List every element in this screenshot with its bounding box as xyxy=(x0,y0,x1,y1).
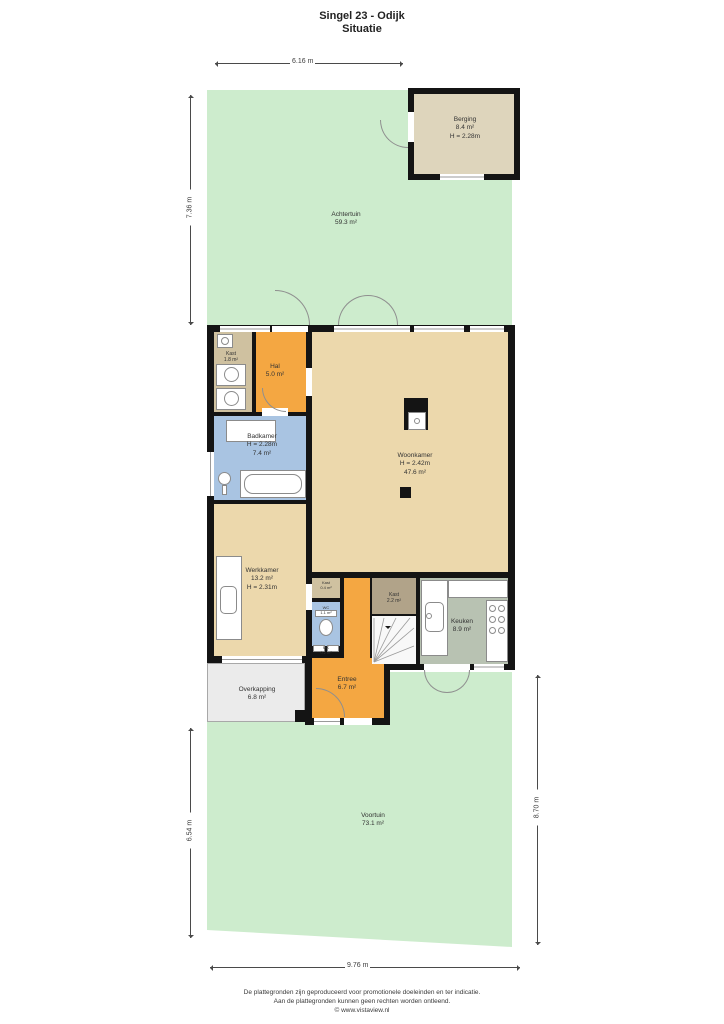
keuken-name: Keuken xyxy=(432,618,492,626)
disclaimer-line2: Aan de plattegronden kunnen geen rechten… xyxy=(0,997,724,1006)
kast-trap-label: Kast 2.2 m² xyxy=(374,592,414,605)
entree-area: 6.7 m² xyxy=(317,684,377,692)
werkkamer-label: Werkkamer 13.2 m² H = 2.31m xyxy=(202,567,322,592)
dimension-arrow-icon xyxy=(210,965,213,971)
fireplace-flue-icon xyxy=(414,418,420,424)
stove-burner-icon xyxy=(498,605,505,612)
hal-woonkamer-opening xyxy=(306,368,312,396)
hal-name: Hal xyxy=(245,363,305,371)
overkapping-area: 6.8 m² xyxy=(197,694,317,702)
entree-front-door-opening xyxy=(344,718,372,725)
meterkast-area: 0.2 m² xyxy=(306,651,346,656)
dryer-drum-icon xyxy=(224,391,239,406)
berging-name: Berging xyxy=(405,116,525,124)
garden-door-opening xyxy=(272,326,308,332)
dimension-label-top: 6.16 m xyxy=(290,58,315,65)
keuken-area: 8.9 m² xyxy=(432,626,492,634)
room-entree-gang xyxy=(344,578,370,658)
keuken-label: Keuken 8.9 m² xyxy=(432,618,492,635)
dimension-label-left-upper: 7.36 m xyxy=(187,190,194,226)
werkkamer-name: Werkkamer xyxy=(202,567,322,575)
berging-area: 8.4 m² xyxy=(405,124,525,132)
berging-window xyxy=(440,174,484,180)
kast-klein-area: 0.4 m² xyxy=(306,586,346,591)
dimension-arrow-icon xyxy=(517,965,520,971)
overkapping-name: Overkapping xyxy=(197,686,317,694)
achtertuin-area: 59.3 m² xyxy=(286,219,406,227)
woonkamer-area: 47.6 m² xyxy=(355,469,475,477)
bathroom-toilet-base-icon xyxy=(222,485,227,495)
badkamer-window xyxy=(207,452,214,496)
badkamer-label: Badkamer H = 2.28m 7.4 m² xyxy=(202,433,322,458)
entree-front-window xyxy=(314,718,340,725)
dimension-arrow-icon xyxy=(535,942,541,945)
bathtub-inner-icon xyxy=(244,474,302,494)
dimension-arrow-icon xyxy=(188,322,194,325)
werkkamer-area: 13.2 m² xyxy=(202,575,322,583)
dimension-label-right: 8.70 m xyxy=(534,790,541,826)
wc-area: 1.1 m² xyxy=(306,611,346,616)
washing-machine-drum-icon xyxy=(224,367,239,382)
hal-area: 5.0 m² xyxy=(245,371,305,379)
overkapping-label: Overkapping 6.8 m² xyxy=(197,686,317,703)
dimension-label-left-lower: 6.54 m xyxy=(187,813,194,849)
wc-toilet-icon xyxy=(319,619,333,636)
kast-bij-hal-label: Kast 1.8 m² xyxy=(210,351,252,364)
floorplan-page: Singel 23 - Odijk Situatie xyxy=(0,0,724,1024)
entree-name: Entree xyxy=(317,676,377,684)
woonkamer-height: H = 2.42m xyxy=(355,460,475,468)
woonkamer-window-1 xyxy=(414,326,464,332)
berging-label: Berging 8.4 m² H = 2.28m xyxy=(405,116,525,141)
column-icon xyxy=(400,487,411,498)
page-title: Singel 23 - Odijk Situatie xyxy=(0,10,724,36)
badkamer-area: 7.4 m² xyxy=(202,450,322,458)
kast-trap-area: 2.2 m² xyxy=(374,598,414,604)
achtertuin-window xyxy=(220,326,270,332)
voortuin-area: 73.1 m² xyxy=(313,820,433,828)
achtertuin-name: Achtertuin xyxy=(286,211,406,219)
title-line2: Situatie xyxy=(0,23,724,36)
stairs-fan-lines xyxy=(372,616,416,664)
keuken-front-window xyxy=(474,664,504,670)
dimension-arrow-icon xyxy=(188,935,194,938)
kast-klein-label: Kast 0.4 m² xyxy=(306,581,346,591)
overkapping-post xyxy=(295,710,305,722)
dimension-arrow-icon xyxy=(188,95,194,98)
woonkamer-name: Woonkamer xyxy=(355,452,475,460)
badkamer-name: Badkamer xyxy=(202,433,322,441)
berging-height: H = 2.28m xyxy=(405,133,525,141)
kitchen-counter-top-icon xyxy=(448,580,508,598)
badkamer-height: H = 2.28m xyxy=(202,441,322,449)
disclaimer: De plattegronden zijn geproduceerd voor … xyxy=(0,988,724,1015)
meterkast-label: MK 0.2 m² xyxy=(306,646,346,656)
woonkamer-garden-doors xyxy=(334,326,410,332)
dimension-label-bottom: 9.76 m xyxy=(345,962,370,969)
voortuin-name: Voortuin xyxy=(313,812,433,820)
achtertuin-label: Achtertuin 59.3 m² xyxy=(286,211,406,228)
wc-label: WC 1.1 m² xyxy=(306,606,346,616)
disclaimer-line1: De plattegronden zijn geproduceerd voor … xyxy=(0,988,724,997)
stove-burner-icon xyxy=(498,627,505,634)
stove-burner-icon xyxy=(489,605,496,612)
stove-burner-icon xyxy=(498,616,505,623)
entree-label: Entree 6.7 m² xyxy=(317,676,377,693)
voortuin-label: Voortuin 73.1 m² xyxy=(313,812,433,829)
bathroom-toilet-icon xyxy=(218,472,231,485)
dimension-arrow-icon xyxy=(215,61,218,67)
woonkamer-label: Woonkamer H = 2.42m 47.6 m² xyxy=(355,452,475,477)
woonkamer-window-2 xyxy=(470,326,504,332)
stairs-direction-arrow-icon xyxy=(385,626,391,629)
hal-label: Hal 5.0 m² xyxy=(245,363,305,380)
dimension-arrow-icon xyxy=(188,728,194,731)
copyright-line: © www.vistaview.nl xyxy=(0,1006,724,1015)
werkkamer-window xyxy=(222,656,302,663)
werkkamer-height: H = 2.31m xyxy=(202,584,322,592)
utility-sink-basin-icon xyxy=(221,337,229,345)
dimension-arrow-icon xyxy=(400,61,403,67)
title-line1: Singel 23 - Odijk xyxy=(0,10,724,23)
stairs-icon xyxy=(372,616,416,664)
dimension-arrow-icon xyxy=(535,675,541,678)
